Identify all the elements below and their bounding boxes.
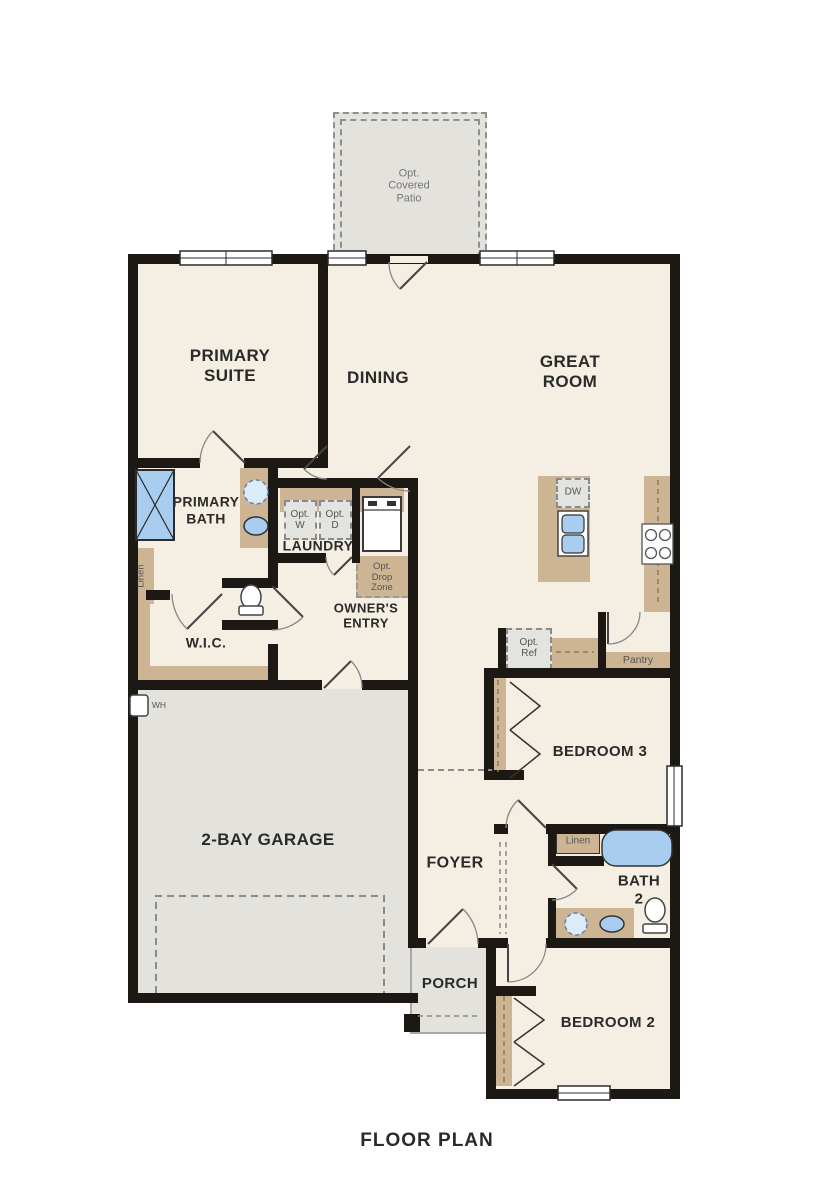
bath2-vanity bbox=[554, 908, 634, 940]
fixture-label-fau: FAU bbox=[371, 526, 392, 538]
room-label-foyer: FOYER bbox=[426, 855, 483, 874]
wall-bedroom3-bottom bbox=[546, 824, 680, 834]
room-label-bath2: BATH 2 bbox=[618, 872, 660, 907]
wall-bath2-bedroom2 bbox=[546, 938, 680, 948]
wall-pantry-left bbox=[598, 612, 606, 672]
room-label-garage: 2-BAY GARAGE bbox=[201, 830, 334, 850]
room-label-bedroom2: BEDROOM 2 bbox=[561, 1014, 655, 1032]
wall-primary-dining-divider bbox=[318, 254, 328, 446]
page-title: FLOOR PLAN bbox=[360, 1130, 494, 1152]
wall-primary-south-a bbox=[128, 458, 200, 468]
room-label-laundry: LAUNDRY bbox=[283, 538, 354, 555]
fixture-label-linen-bath2: Linen bbox=[566, 835, 590, 846]
bedroom2-closet-shelf bbox=[496, 992, 512, 1086]
room-label-pantry: Pantry bbox=[623, 655, 653, 667]
wall-bedroom3-closet-left bbox=[484, 668, 494, 780]
wall-garage-right bbox=[408, 478, 418, 948]
fixture-label-opt-sink: Opt bbox=[570, 920, 581, 928]
floor-plan: Opt. Covered Patio PRIMARY SUITE DINING … bbox=[0, 0, 833, 1202]
fixture-label-opt-washer: Opt. W bbox=[291, 509, 310, 531]
wall-bedroom2-left bbox=[486, 938, 496, 1099]
wall-toilet-niche-top bbox=[222, 578, 278, 588]
wall-toilet-niche-bottom bbox=[222, 620, 278, 630]
wall-bedroom3-bottom-stub bbox=[494, 824, 508, 834]
fixture-label-drop-zone: Opt. Drop Zone bbox=[371, 562, 393, 594]
wall-wic-top bbox=[146, 590, 170, 600]
fixture-label-water-heater: WH bbox=[152, 701, 166, 711]
wall-garage-top-b bbox=[362, 680, 418, 690]
wall-primary-south-b bbox=[244, 458, 328, 468]
wall-bedroom2-closet-top bbox=[492, 986, 536, 996]
wall-hall-bottom-stub bbox=[494, 938, 508, 948]
wall-laundry-top bbox=[268, 478, 418, 488]
primary-bath-vanity bbox=[240, 468, 270, 548]
fixture-label-opt-tub: Opt. bbox=[249, 488, 262, 496]
wall-hall-vertical-b bbox=[268, 644, 278, 690]
wall-bedroom3-closet-bottom bbox=[484, 770, 524, 780]
wall-laundry-bottom-a bbox=[268, 553, 326, 563]
wall-linen2-bottom bbox=[548, 856, 604, 866]
fixture-label-opt-dryer: Opt. D bbox=[326, 509, 345, 531]
wall-bedroom3-top bbox=[484, 668, 680, 678]
room-label-owners-entry: OWNER'S ENTRY bbox=[334, 601, 398, 632]
wall-exterior-top bbox=[128, 254, 680, 264]
room-label-wic: W.I.C. bbox=[186, 635, 227, 652]
room-label-dining: DINING bbox=[347, 368, 409, 388]
room-label-patio: Opt. Covered Patio bbox=[388, 168, 430, 205]
wall-exterior-left bbox=[128, 254, 138, 1003]
porch-corner-post bbox=[404, 1014, 420, 1032]
wall-bedroom2-bottom bbox=[486, 1089, 680, 1099]
room-label-porch: PORCH bbox=[422, 975, 478, 993]
room-label-bedroom3: BEDROOM 3 bbox=[553, 743, 647, 761]
room-label-primary-bath: PRIMARY BATH bbox=[173, 493, 240, 526]
wall-garage-bottom bbox=[128, 993, 418, 1003]
fixture-label-dishwasher: DW bbox=[565, 486, 582, 497]
fixture-label-linen-primary: Linen bbox=[137, 564, 148, 587]
kitchen-back-counter bbox=[552, 638, 598, 670]
wall-laundry-bottom-b bbox=[352, 553, 360, 563]
wall-garage-top-a bbox=[128, 680, 322, 690]
room-label-great-room: GREAT ROOM bbox=[540, 352, 600, 392]
fixture-label-opt-fridge: Opt. Ref bbox=[520, 637, 539, 659]
kitchen-wall-counter bbox=[644, 476, 672, 612]
room-label-primary-suite: PRIMARY SUITE bbox=[190, 346, 271, 386]
